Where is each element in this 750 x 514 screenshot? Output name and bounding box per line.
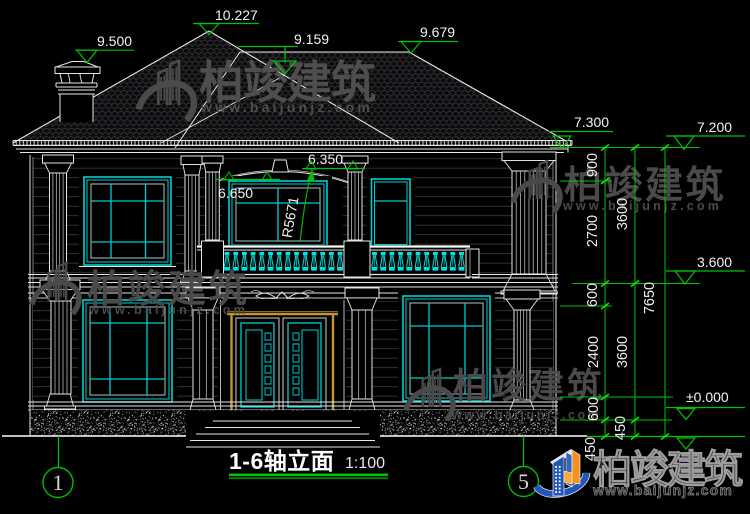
svg-text:1:100: 1:100 [345, 455, 385, 472]
svg-text:3600: 3600 [615, 336, 631, 368]
svg-text:1-6轴立面: 1-6轴立面 [229, 448, 334, 474]
svg-text:600: 600 [585, 283, 601, 307]
svg-text:www.baijunjz.com: www.baijunjz.com [592, 482, 733, 498]
svg-text:www.baijunjz.com: www.baijunjz.com [562, 199, 722, 213]
svg-text:7650: 7650 [642, 282, 658, 314]
svg-text:3600: 3600 [615, 198, 631, 230]
svg-text:9.500: 9.500 [97, 33, 132, 49]
svg-text:3.600: 3.600 [697, 254, 732, 270]
svg-text:±0.000: ±0.000 [686, 389, 729, 405]
svg-text:柏竣建筑: 柏竣建筑 [453, 366, 605, 406]
svg-text:450: 450 [613, 416, 629, 440]
svg-text:2400: 2400 [586, 336, 602, 368]
svg-text:7.300: 7.300 [574, 114, 609, 130]
svg-text:10.227: 10.227 [215, 7, 258, 23]
svg-text:www.baijunjz.com: www.baijunjz.com [200, 99, 373, 115]
svg-text:2700: 2700 [585, 215, 601, 247]
svg-text:6.650: 6.650 [218, 185, 253, 201]
svg-text:1: 1 [53, 470, 64, 495]
svg-text:5: 5 [518, 469, 529, 494]
svg-text:900: 900 [585, 153, 601, 177]
svg-text:9.679: 9.679 [420, 24, 455, 40]
svg-text:600: 600 [586, 397, 602, 421]
svg-text:9.159: 9.159 [294, 31, 329, 47]
svg-text:7.200: 7.200 [697, 119, 732, 135]
svg-text:www.baijunjz.com: www.baijunjz.com [88, 303, 248, 317]
